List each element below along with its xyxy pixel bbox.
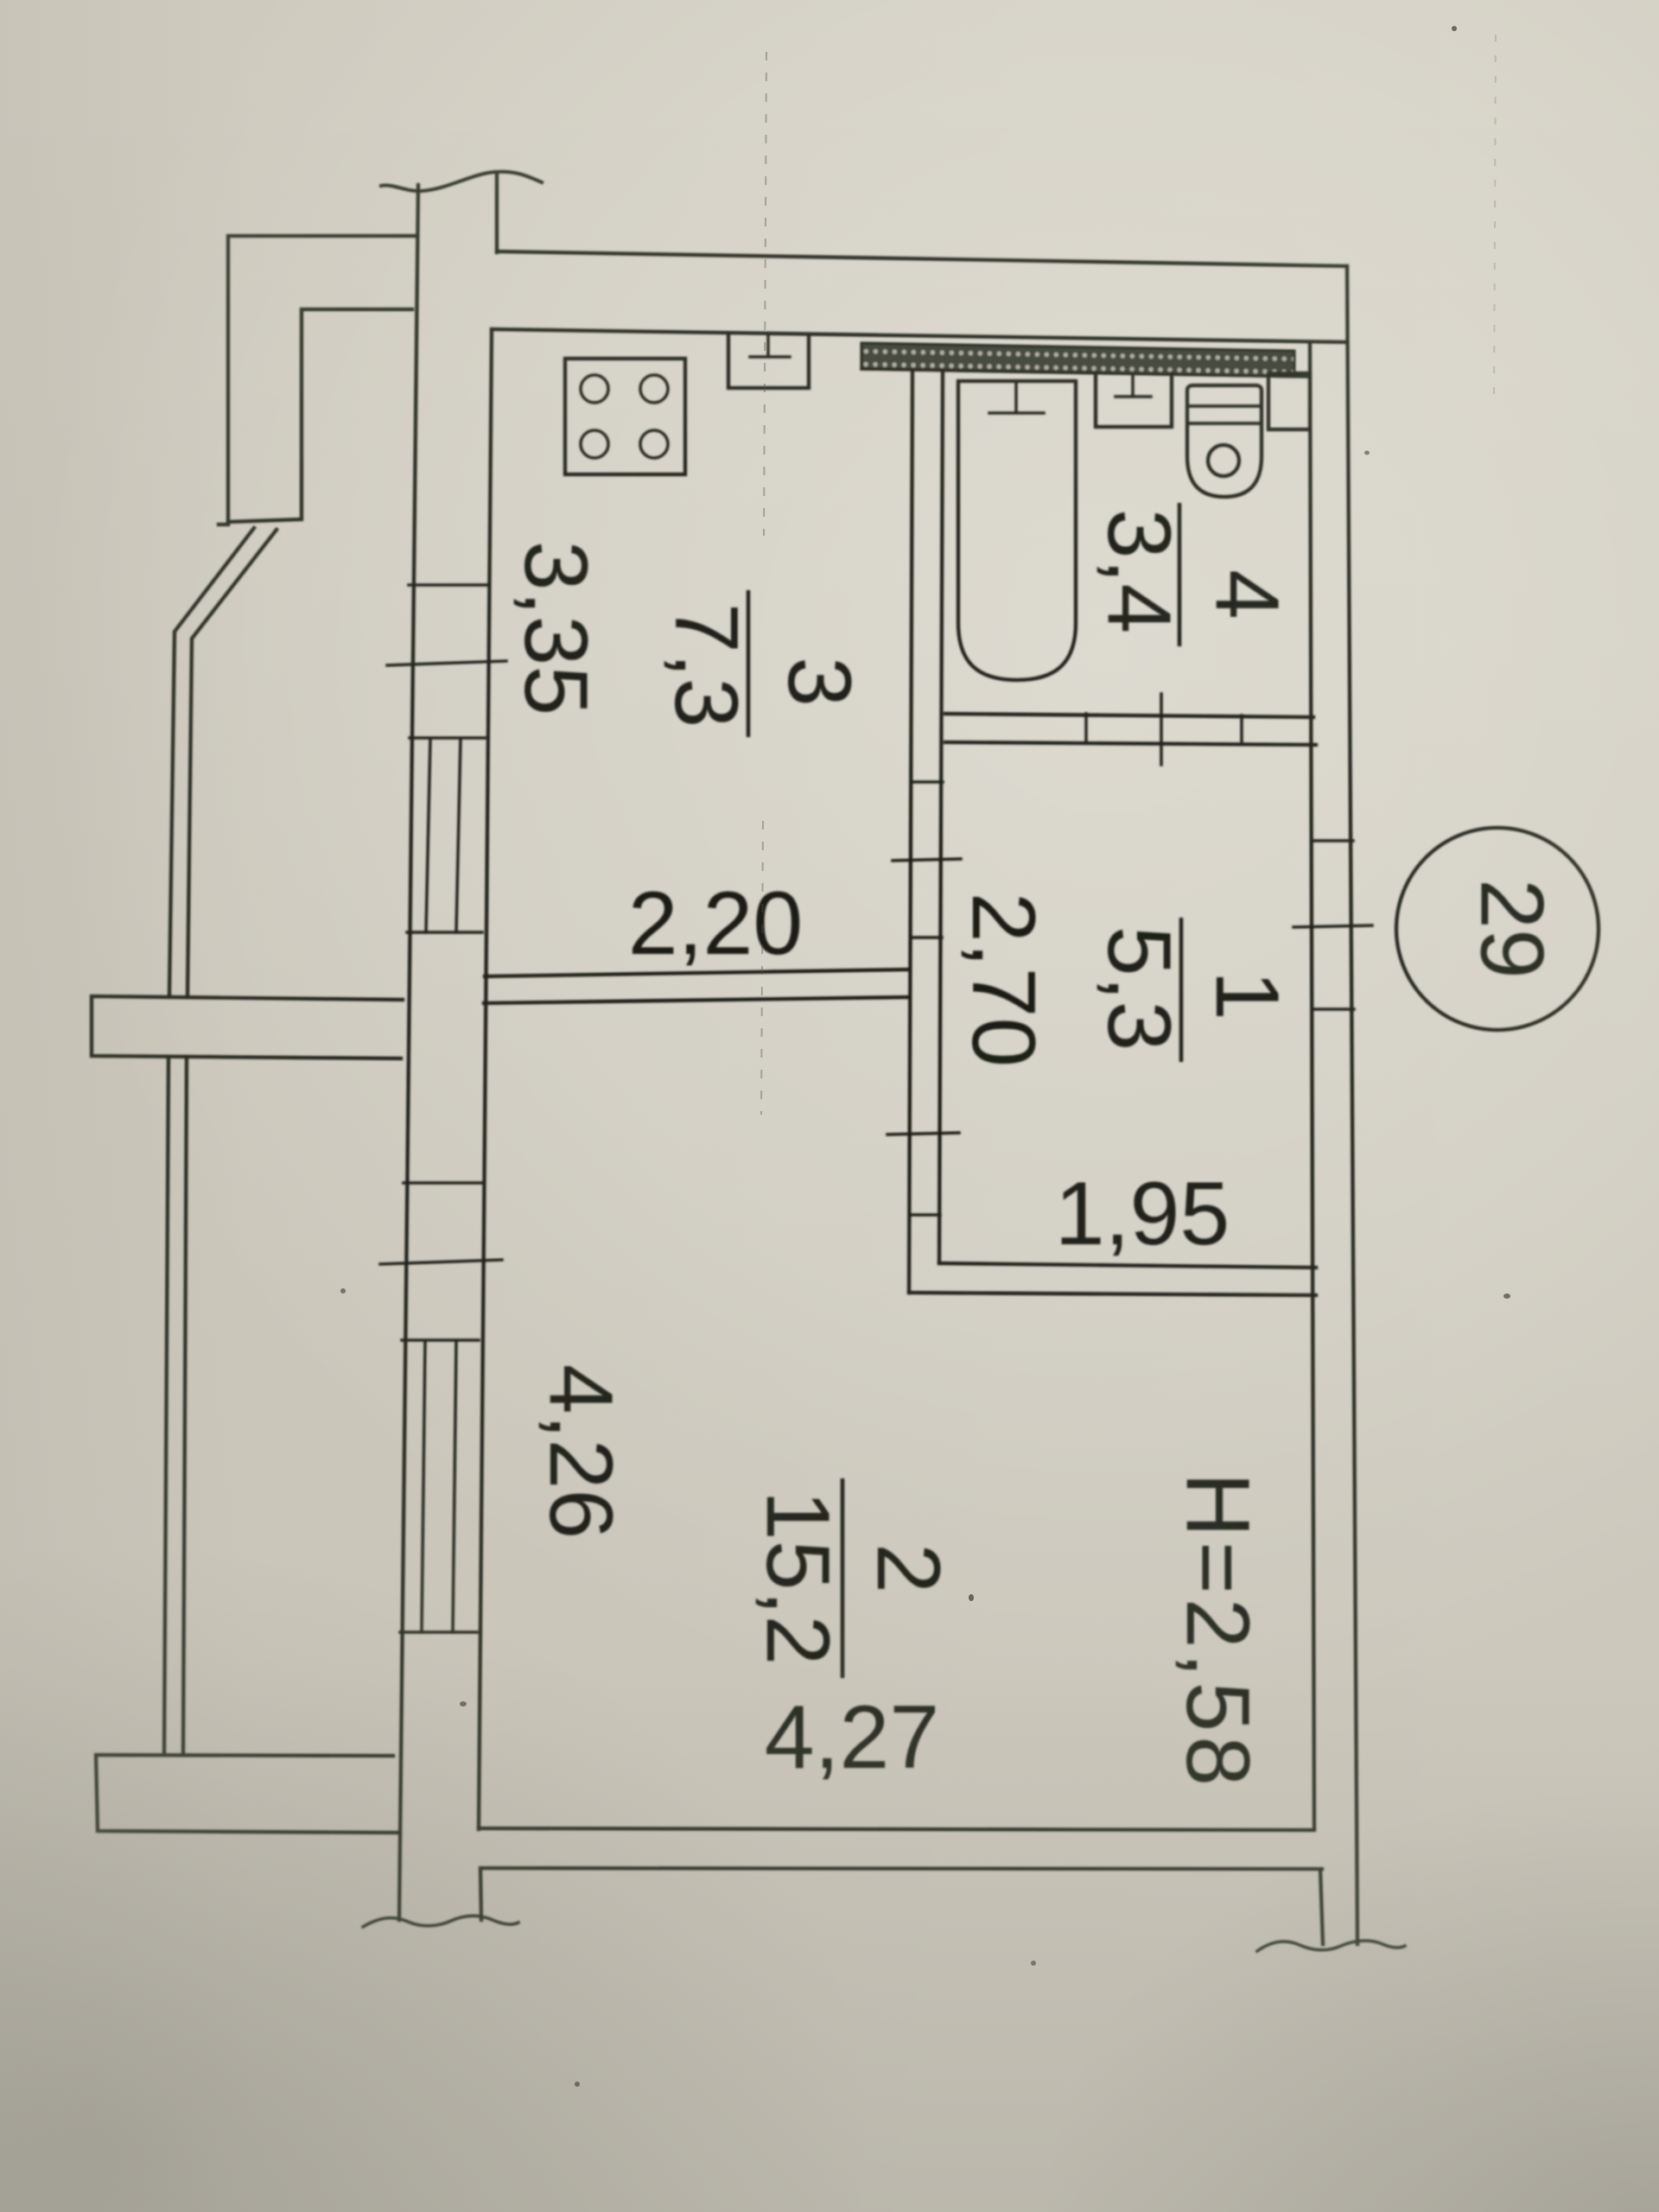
svg-text:2: 2 [858, 1543, 958, 1593]
svg-text:1: 1 [1197, 970, 1297, 1020]
svg-text:4,27: 4,27 [765, 1688, 939, 1788]
svg-text:5,3: 5,3 [1089, 926, 1189, 1052]
svg-text:29: 29 [1462, 879, 1562, 979]
svg-text:H=2,58: H=2,58 [1167, 1472, 1268, 1790]
svg-text:4: 4 [1197, 569, 1297, 620]
svg-text:3,35: 3,35 [505, 541, 606, 715]
svg-text:2,70: 2,70 [953, 893, 1053, 1067]
svg-text:2,20: 2,20 [628, 874, 803, 974]
svg-text:1,95: 1,95 [1055, 1164, 1230, 1264]
svg-text:4,26: 4,26 [531, 1364, 631, 1539]
svg-text:15,2: 15,2 [747, 1491, 848, 1665]
svg-text:3,4: 3,4 [1089, 509, 1189, 634]
svg-text:3: 3 [769, 657, 869, 707]
svg-text:7,3: 7,3 [656, 603, 756, 728]
